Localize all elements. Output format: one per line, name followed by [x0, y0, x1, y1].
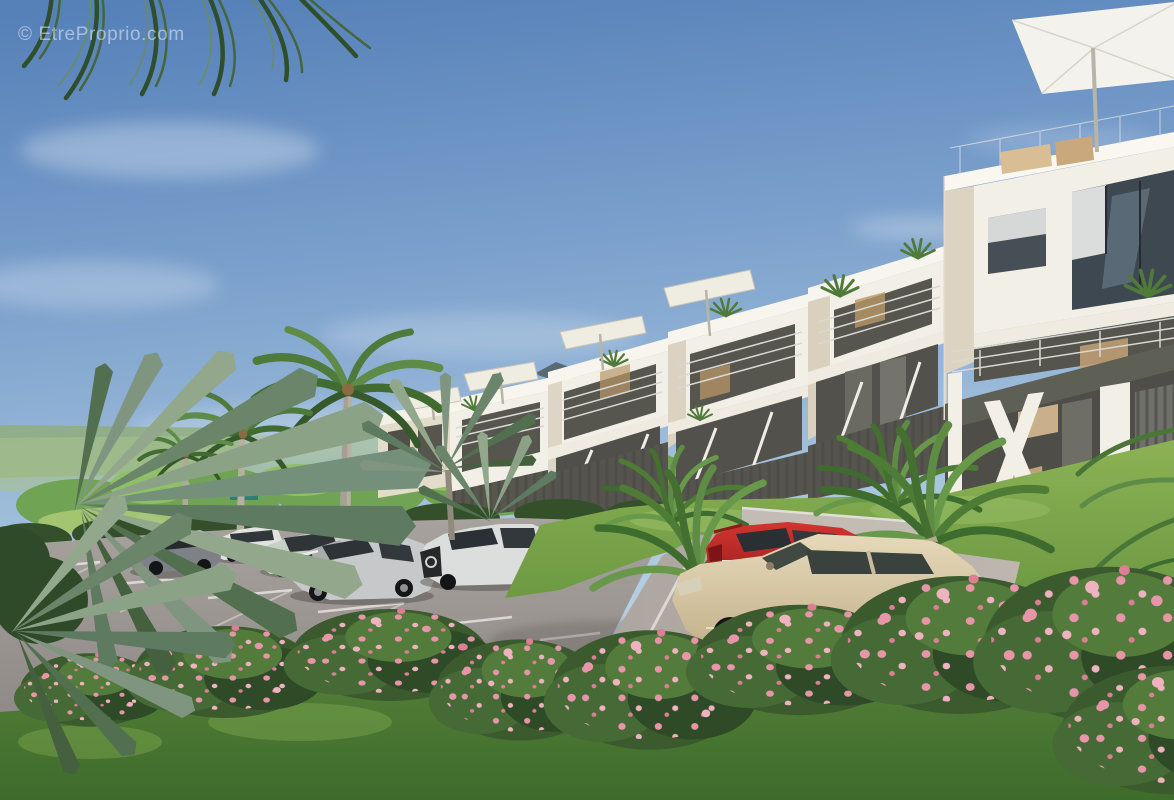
scene-canvas [0, 0, 1174, 800]
render-image: © EtreProprio.com [0, 0, 1174, 800]
small-window [988, 208, 1046, 274]
